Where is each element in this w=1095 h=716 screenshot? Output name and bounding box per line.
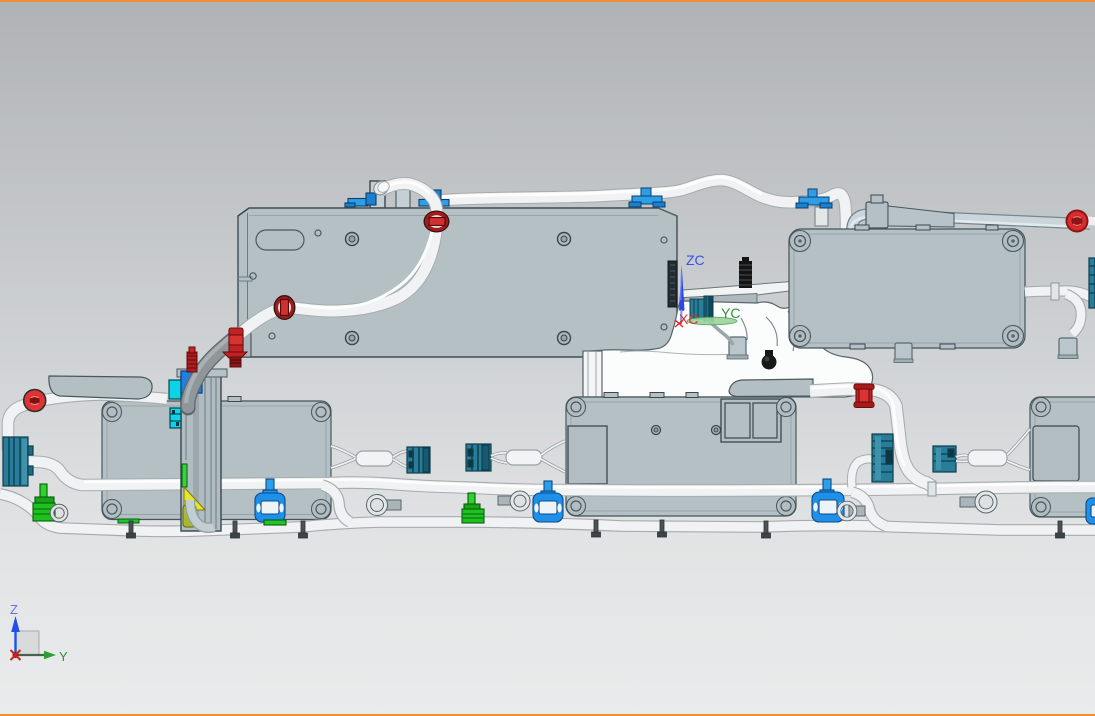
svg-text:ZC: ZC [686,252,705,268]
svg-text:Z: Z [10,602,18,617]
svg-text:XC: XC [679,311,698,327]
svg-text:Y: Y [59,649,68,664]
svg-text:YC: YC [721,305,740,321]
